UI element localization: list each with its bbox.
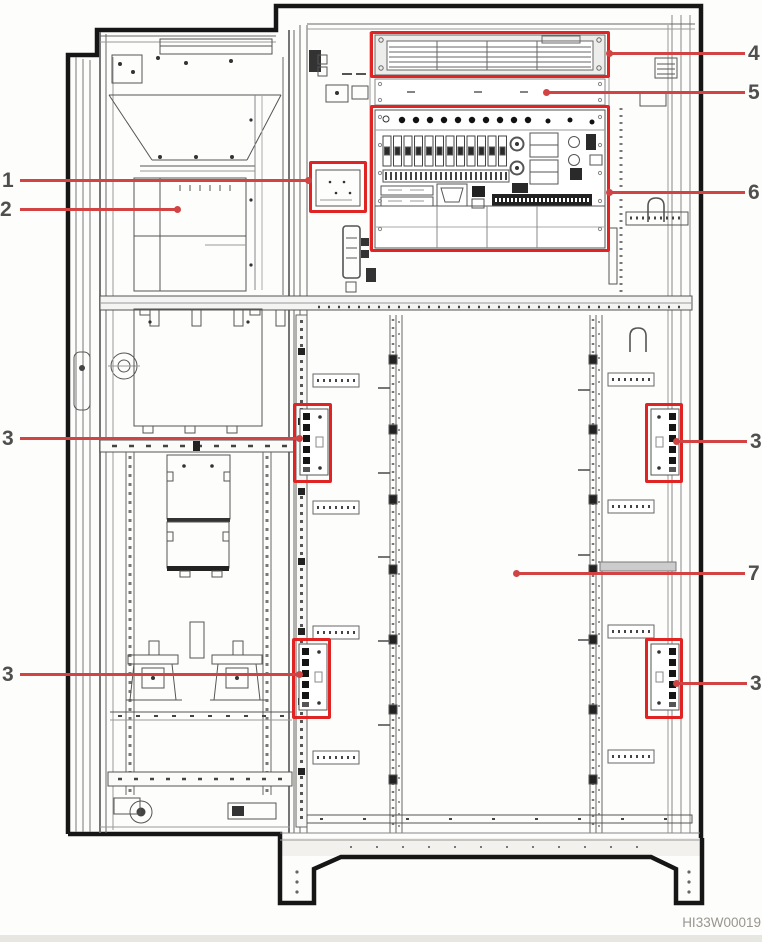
- left-lower-compartment: [100, 309, 295, 827]
- leader-line-3-right-middle: [675, 440, 747, 443]
- callout-label-3-right-middle: 3: [750, 431, 762, 452]
- leader-dot-6: [606, 189, 613, 196]
- leader-dot-2: [174, 206, 181, 213]
- leader-line-5: [546, 91, 745, 94]
- foot-rivets: [295, 870, 690, 893]
- leader-dot-3-right-bottom: [673, 680, 680, 687]
- highlight-box-4: [370, 31, 610, 78]
- highlight-box-1: [309, 161, 367, 213]
- callout-label-2: 2: [0, 199, 12, 220]
- callout-label-3-right-bottom: 3: [750, 673, 762, 694]
- leader-line-3-right-bottom: [675, 682, 747, 685]
- leader-line-2: [20, 208, 179, 211]
- leader-dot-3-left-middle: [296, 435, 303, 442]
- leader-dot-3-left-bottom: [296, 671, 303, 678]
- callout-label-5: 5: [748, 82, 760, 103]
- figure-code: HI33W00019: [682, 915, 761, 930]
- leader-dot-7: [513, 570, 520, 577]
- left-upper-compartment: [109, 39, 281, 291]
- highlight-box-3-left-bottom: [292, 638, 331, 719]
- cabinet-diagram: 1 2 3 3 4 5 6 3 7 3 HI33W00019: [0, 0, 762, 942]
- callout-label-3-left-bottom: 3: [2, 664, 14, 685]
- callout-label-6: 6: [748, 182, 760, 203]
- battery-compartment: [280, 315, 700, 847]
- terminal-strips: [299, 409, 679, 710]
- leader-line-1: [20, 179, 310, 182]
- highlight-box-3-left-middle: [293, 403, 332, 483]
- leader-dot-4: [606, 50, 613, 57]
- page-bottom-strip: [0, 935, 762, 942]
- highlight-box-3-right-bottom: [645, 638, 683, 719]
- callout-label-1: 1: [2, 170, 14, 191]
- highlight-box-6: [370, 105, 610, 252]
- callout-label-4: 4: [748, 43, 760, 64]
- callout-label-3-left-middle: 3: [2, 428, 14, 449]
- callout-label-7: 7: [748, 563, 760, 584]
- leader-dot-3-right-middle: [673, 438, 680, 445]
- leader-line-7: [515, 572, 745, 575]
- leader-line-4: [609, 52, 745, 55]
- center-upright-column: [296, 315, 307, 827]
- leader-dot-1: [305, 177, 312, 184]
- leader-line-6: [609, 191, 745, 194]
- leader-line-3-left-middle: [20, 437, 301, 440]
- leader-line-3-left-bottom: [20, 673, 301, 676]
- leader-dot-5: [543, 89, 550, 96]
